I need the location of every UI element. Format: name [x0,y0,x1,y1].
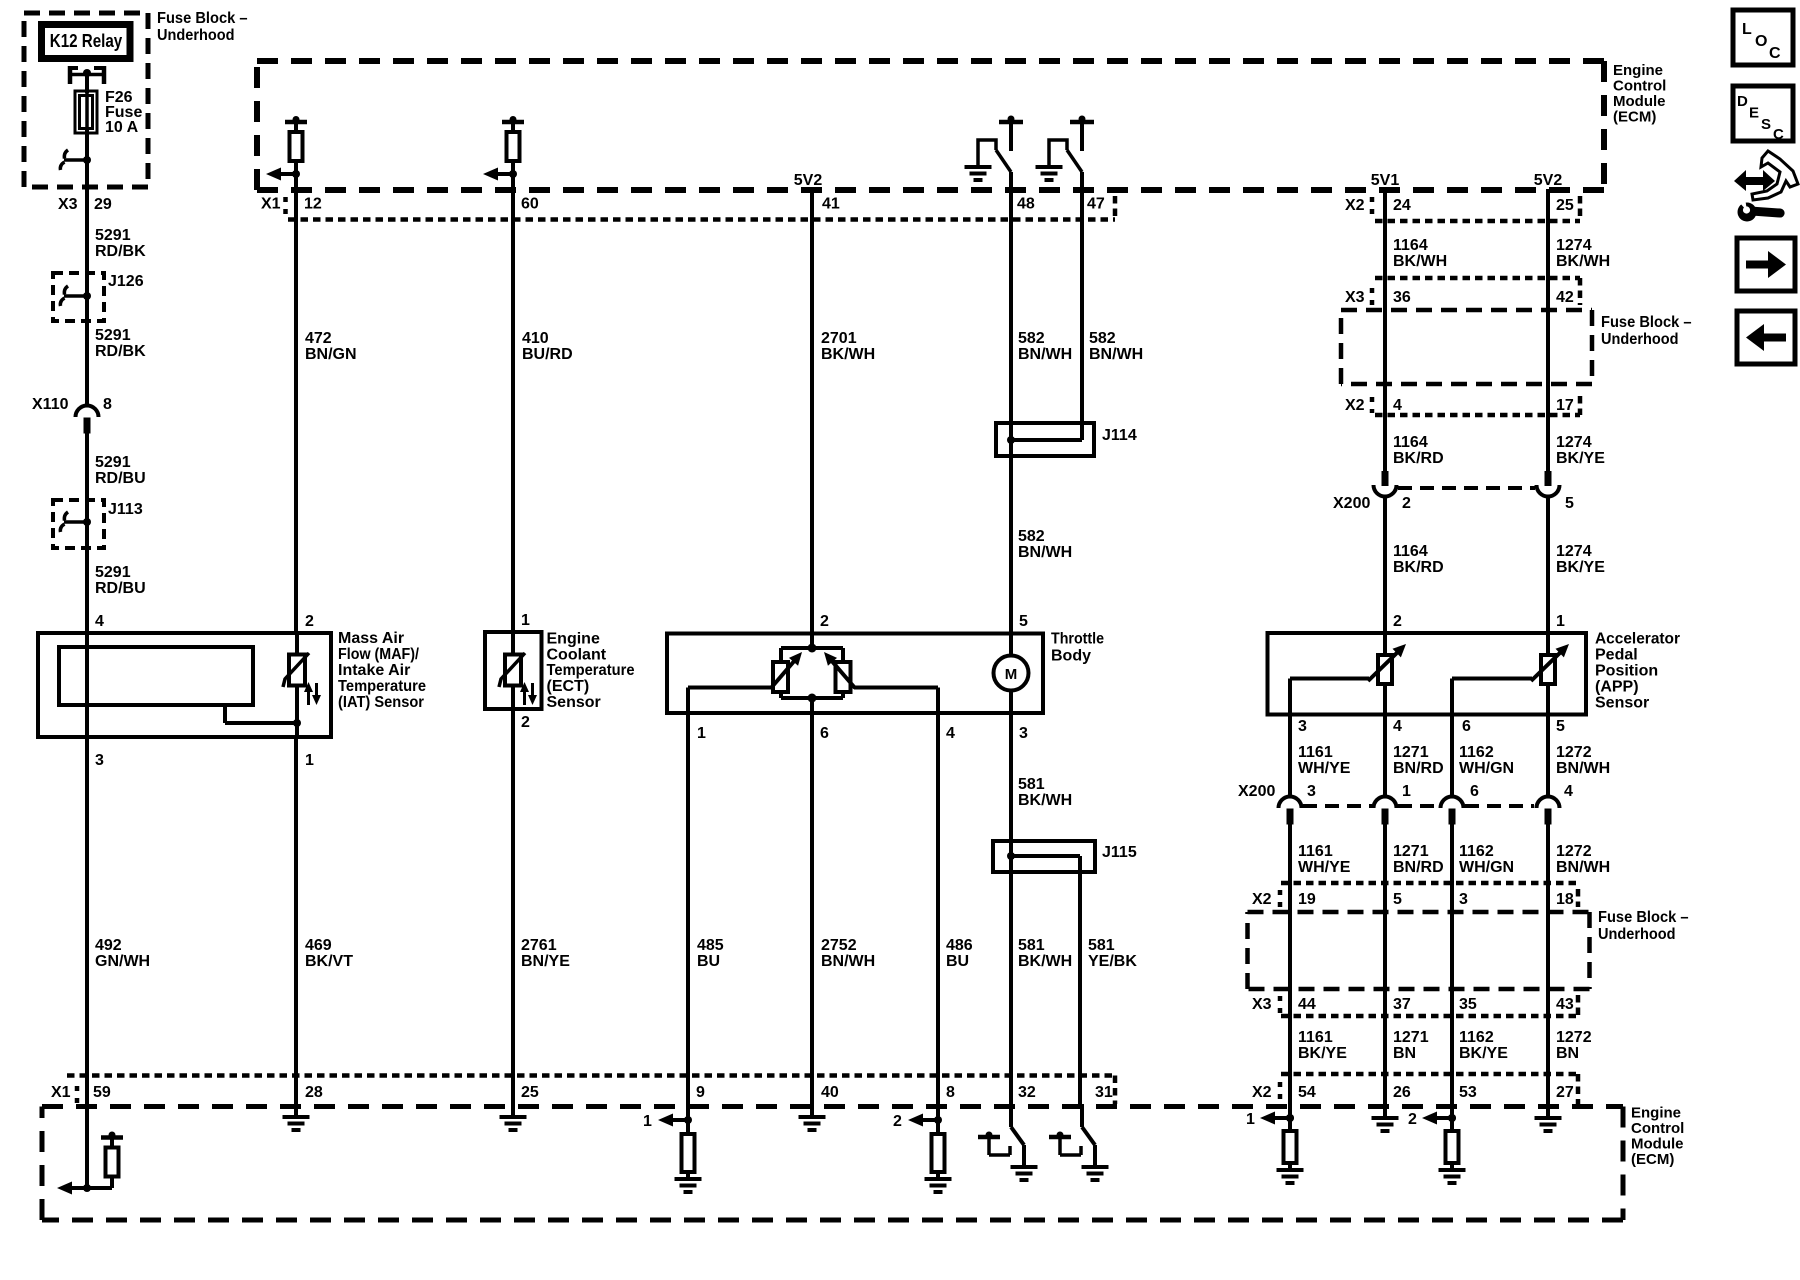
svg-text:35: 35 [1459,996,1477,1013]
svg-text:4: 4 [1393,397,1402,414]
svg-text:472: 472 [305,330,332,347]
svg-text:Intake Air: Intake Air [338,662,410,679]
svg-text:RD/BU: RD/BU [95,470,146,487]
svg-text:44: 44 [1298,996,1316,1013]
svg-text:C: C [1773,126,1784,143]
svg-text:4: 4 [95,613,104,630]
svg-text:1271: 1271 [1393,1029,1429,1046]
svg-text:Pedal: Pedal [1595,647,1638,664]
svg-text:59: 59 [93,1084,111,1101]
svg-text:5291: 5291 [95,327,131,344]
svg-text:X2: X2 [1252,891,1272,908]
svg-text:BU: BU [697,953,720,970]
svg-text:Underhood: Underhood [1598,926,1676,943]
svg-text:(IAT) Sensor: (IAT) Sensor [338,694,424,711]
svg-text:BN/RD: BN/RD [1393,859,1444,876]
svg-text:X200: X200 [1238,783,1275,800]
svg-text:1161: 1161 [1298,1029,1333,1046]
svg-text:Coolant: Coolant [547,647,607,664]
svg-text:1274: 1274 [1556,543,1592,560]
svg-text:1: 1 [697,725,706,742]
svg-text:6: 6 [1470,783,1479,800]
svg-text:RD/BU: RD/BU [95,580,146,597]
svg-text:2: 2 [521,714,530,731]
svg-text:Fuse Block –: Fuse Block – [1601,314,1692,331]
svg-text:(ECM): (ECM) [1631,1151,1674,1168]
svg-text:24: 24 [1393,197,1411,214]
svg-text:M: M [1005,666,1018,683]
svg-text:581: 581 [1088,937,1115,954]
svg-text:(ECM): (ECM) [1613,109,1656,126]
svg-text:BK/WH: BK/WH [1018,792,1072,809]
svg-text:Fuse Block –: Fuse Block – [157,10,248,27]
svg-text:2: 2 [893,1113,902,1130]
svg-text:32: 32 [1018,1084,1036,1101]
svg-text:41: 41 [822,196,840,213]
svg-text:2701: 2701 [821,330,857,347]
svg-text:2: 2 [820,613,829,630]
svg-text:1164: 1164 [1393,237,1428,254]
svg-text:BK/VT: BK/VT [305,953,353,970]
svg-text:X2: X2 [1252,1084,1272,1101]
svg-text:X200: X200 [1333,495,1370,512]
svg-text:3: 3 [95,752,104,769]
svg-text:BK/WH: BK/WH [1556,253,1610,270]
svg-text:10 A: 10 A [105,119,139,136]
svg-text:5291: 5291 [95,454,131,471]
svg-text:Throttle: Throttle [1051,631,1104,648]
svg-text:582: 582 [1018,528,1045,545]
svg-text:BU/RD: BU/RD [522,346,573,363]
svg-text:Engine: Engine [1631,1105,1681,1122]
svg-text:486: 486 [946,937,973,954]
svg-text:D: D [1737,93,1748,110]
svg-text:1162: 1162 [1459,744,1494,761]
svg-text:26: 26 [1393,1084,1411,1101]
svg-text:581: 581 [1018,776,1045,793]
svg-text:Sensor: Sensor [547,694,601,711]
svg-text:1164: 1164 [1393,543,1428,560]
svg-text:581: 581 [1018,937,1045,954]
svg-text:582: 582 [1089,330,1116,347]
svg-text:J113: J113 [108,501,143,518]
svg-text:BN/WH: BN/WH [1089,346,1143,363]
svg-text:42: 42 [1556,289,1574,306]
svg-text:(APP): (APP) [1595,679,1639,696]
svg-text:1: 1 [521,612,530,629]
svg-text:1274: 1274 [1556,237,1592,254]
svg-text:BN/GN: BN/GN [305,346,357,363]
svg-text:5: 5 [1556,718,1565,735]
svg-text:2761: 2761 [521,937,557,954]
svg-text:O: O [1755,33,1767,50]
svg-text:2752: 2752 [821,937,857,954]
svg-text:492: 492 [95,937,122,954]
svg-text:WH/GN: WH/GN [1459,859,1514,876]
svg-text:X1: X1 [261,196,281,213]
svg-text:BN/WH: BN/WH [1556,760,1610,777]
svg-text:5291: 5291 [95,564,131,581]
svg-text:X2: X2 [1345,197,1365,214]
svg-text:BU: BU [946,953,969,970]
svg-text:GN/WH: GN/WH [95,953,150,970]
svg-text:J126: J126 [108,273,144,290]
svg-text:BK/YE: BK/YE [1556,559,1605,576]
svg-text:1: 1 [1556,613,1565,630]
svg-text:1271: 1271 [1393,843,1429,860]
svg-text:BK/WH: BK/WH [1393,253,1447,270]
svg-text:1: 1 [1402,783,1411,800]
svg-text:3: 3 [1307,783,1316,800]
svg-text:469: 469 [305,937,332,954]
svg-text:5V2: 5V2 [1534,172,1563,189]
svg-text:3: 3 [1298,718,1307,735]
svg-text:4: 4 [1393,718,1402,735]
svg-text:5291: 5291 [95,227,131,244]
svg-text:S: S [1761,116,1771,133]
svg-text:8: 8 [103,396,112,413]
svg-text:1162: 1162 [1459,1029,1494,1046]
svg-text:BK/YE: BK/YE [1298,1045,1347,1062]
svg-text:25: 25 [521,1084,539,1101]
svg-text:36: 36 [1393,289,1411,306]
svg-text:2: 2 [1393,613,1402,630]
svg-text:Mass Air: Mass Air [338,630,404,647]
svg-text:L: L [1742,21,1752,38]
svg-text:X1: X1 [51,1084,71,1101]
svg-text:37: 37 [1393,996,1411,1013]
svg-text:2: 2 [1402,495,1411,512]
svg-text:X3: X3 [1252,996,1272,1013]
svg-text:E: E [1749,105,1759,122]
svg-text:Accelerator: Accelerator [1595,631,1680,648]
svg-text:BN/YE: BN/YE [521,953,570,970]
svg-text:1162: 1162 [1459,843,1494,860]
svg-text:5V2: 5V2 [794,172,823,189]
svg-text:(ECT): (ECT) [547,678,590,695]
svg-text:2: 2 [1408,1111,1417,1128]
svg-text:BN/RD: BN/RD [1393,760,1444,777]
svg-text:47: 47 [1087,196,1105,213]
svg-text:C: C [1769,45,1781,62]
svg-text:18: 18 [1556,891,1574,908]
svg-text:6: 6 [1462,718,1471,735]
svg-text:WH/YE: WH/YE [1298,760,1351,777]
svg-text:BK/RD: BK/RD [1393,559,1444,576]
svg-text:Flow (MAF)/: Flow (MAF)/ [338,646,419,663]
svg-text:Module: Module [1631,1136,1684,1153]
svg-text:582: 582 [1018,330,1045,347]
svg-text:54: 54 [1298,1084,1316,1101]
svg-text:Body: Body [1051,648,1091,665]
svg-text:6: 6 [820,725,829,742]
svg-text:BN/WH: BN/WH [821,953,875,970]
svg-text:BK/YE: BK/YE [1459,1045,1508,1062]
svg-text:4: 4 [946,725,955,742]
svg-text:1272: 1272 [1556,1029,1592,1046]
svg-text:1161: 1161 [1298,843,1333,860]
svg-text:5: 5 [1019,613,1028,630]
svg-text:BN/WH: BN/WH [1018,346,1072,363]
svg-text:BN/WH: BN/WH [1556,859,1610,876]
svg-text:27: 27 [1556,1084,1574,1101]
svg-text:BK/WH: BK/WH [1018,953,1072,970]
svg-text:5: 5 [1393,891,1402,908]
svg-text:X110: X110 [32,396,69,413]
svg-text:RD/BK: RD/BK [95,243,146,260]
svg-text:Temperature: Temperature [338,678,426,695]
svg-text:Engine: Engine [547,631,600,648]
svg-text:1271: 1271 [1393,744,1429,761]
svg-text:40: 40 [821,1084,839,1101]
svg-text:28: 28 [305,1084,323,1101]
svg-text:19: 19 [1298,891,1316,908]
svg-text:1: 1 [305,752,314,769]
svg-text:X3: X3 [58,196,78,213]
svg-text:5: 5 [1565,495,1574,512]
svg-text:9: 9 [696,1084,705,1101]
svg-text:1161: 1161 [1298,744,1333,761]
svg-text:YE/BK: YE/BK [1088,953,1137,970]
svg-text:12: 12 [304,196,322,213]
svg-text:Fuse Block –: Fuse Block – [1598,909,1689,926]
svg-text:1: 1 [1246,1111,1255,1128]
svg-text:1272: 1272 [1556,843,1592,860]
svg-text:53: 53 [1459,1084,1477,1101]
svg-text:BK/YE: BK/YE [1556,450,1605,467]
svg-text:1: 1 [643,1113,652,1130]
svg-text:3: 3 [1019,725,1028,742]
svg-text:8: 8 [946,1084,955,1101]
svg-text:K12 Relay: K12 Relay [50,30,123,51]
svg-text:J114: J114 [1102,427,1137,444]
svg-text:1272: 1272 [1556,744,1592,761]
svg-text:1274: 1274 [1556,434,1592,451]
svg-text:J115: J115 [1102,844,1137,861]
svg-text:410: 410 [522,330,549,347]
svg-text:RD/BK: RD/BK [95,343,146,360]
svg-text:Sensor: Sensor [1595,695,1649,712]
svg-text:485: 485 [697,937,724,954]
svg-text:WH/GN: WH/GN [1459,760,1514,777]
svg-text:Underhood: Underhood [1601,331,1679,348]
svg-text:17: 17 [1556,397,1574,414]
svg-text:2: 2 [305,613,314,630]
svg-text:31: 31 [1095,1084,1113,1101]
svg-text:Position: Position [1595,663,1658,680]
svg-text:WH/YE: WH/YE [1298,859,1351,876]
svg-text:BN: BN [1556,1045,1579,1062]
svg-text:3: 3 [1459,891,1468,908]
svg-text:4: 4 [1564,783,1573,800]
svg-text:Control: Control [1631,1120,1684,1137]
svg-text:29: 29 [94,196,112,213]
svg-text:BK/WH: BK/WH [821,346,875,363]
svg-text:48: 48 [1017,196,1035,213]
svg-text:Underhood: Underhood [157,27,235,44]
svg-text:BK/RD: BK/RD [1393,450,1444,467]
svg-text:X2: X2 [1345,397,1365,414]
svg-text:X3: X3 [1345,289,1365,306]
svg-text:Engine: Engine [1613,62,1663,79]
svg-text:43: 43 [1556,996,1574,1013]
svg-text:Control: Control [1613,78,1666,95]
svg-text:Temperature: Temperature [547,662,635,679]
svg-text:60: 60 [521,196,539,213]
svg-text:Module: Module [1613,93,1666,110]
svg-text:BN/WH: BN/WH [1018,544,1072,561]
svg-text:5V1: 5V1 [1371,172,1400,189]
svg-text:25: 25 [1556,197,1574,214]
svg-text:BN: BN [1393,1045,1416,1062]
svg-text:1164: 1164 [1393,434,1428,451]
